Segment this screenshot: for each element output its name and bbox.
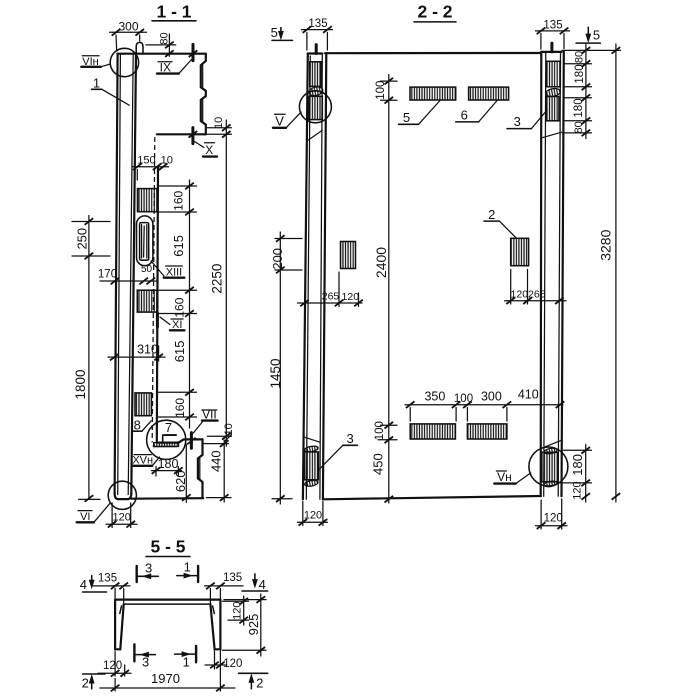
svg-text:160: 160: [173, 398, 187, 418]
svg-text:10: 10: [223, 423, 235, 435]
svg-text:250: 250: [74, 228, 89, 250]
svg-text:120: 120: [223, 658, 242, 670]
svg-text:2: 2: [488, 207, 495, 222]
svg-text:300: 300: [481, 389, 502, 403]
svg-text:170: 170: [98, 268, 117, 280]
svg-text:Vн: Vн: [497, 470, 512, 484]
svg-text:410: 410: [518, 388, 539, 402]
svg-text:3: 3: [514, 114, 521, 129]
svg-text:1: 1: [183, 654, 190, 669]
svg-text:120: 120: [304, 510, 322, 522]
svg-text:3: 3: [145, 561, 152, 576]
svg-text:180: 180: [158, 457, 179, 471]
svg-text:2250: 2250: [210, 264, 225, 294]
svg-text:120: 120: [113, 512, 131, 524]
svg-text:4: 4: [80, 577, 87, 592]
svg-text:5: 5: [403, 110, 410, 125]
svg-text:1: 1: [93, 75, 100, 90]
svg-text:440: 440: [208, 450, 223, 472]
svg-text:180: 180: [570, 454, 585, 476]
svg-text:10: 10: [161, 154, 173, 166]
svg-text:1 - 1: 1 - 1: [156, 2, 191, 22]
svg-text:3280: 3280: [598, 229, 614, 260]
svg-text:180: 180: [573, 98, 585, 117]
svg-text:10: 10: [213, 117, 225, 129]
svg-text:925: 925: [246, 614, 261, 636]
svg-text:3: 3: [346, 431, 353, 446]
svg-text:V: V: [275, 114, 284, 129]
svg-text:450: 450: [370, 453, 385, 475]
svg-text:5: 5: [271, 25, 278, 40]
svg-text:2: 2: [256, 676, 263, 691]
svg-text:100: 100: [454, 393, 473, 405]
svg-text:1450: 1450: [268, 358, 283, 388]
svg-text:2 - 2: 2 - 2: [417, 2, 452, 22]
svg-text:2: 2: [82, 676, 89, 691]
svg-text:160: 160: [171, 190, 185, 210]
svg-text:100: 100: [374, 421, 386, 440]
svg-text:265: 265: [322, 291, 340, 303]
svg-text:135: 135: [223, 572, 242, 584]
svg-text:120: 120: [342, 291, 360, 303]
svg-text:1970: 1970: [151, 671, 180, 686]
svg-text:135: 135: [308, 18, 327, 30]
svg-text:X: X: [205, 143, 213, 157]
svg-text:3: 3: [142, 655, 149, 670]
svg-text:2400: 2400: [373, 247, 389, 278]
svg-text:135: 135: [98, 573, 117, 585]
svg-text:5: 5: [593, 28, 600, 43]
svg-text:615: 615: [171, 235, 186, 257]
svg-text:80: 80: [158, 32, 170, 44]
svg-text:1: 1: [184, 560, 191, 575]
svg-text:120: 120: [544, 512, 563, 524]
svg-text:7: 7: [165, 420, 172, 435]
svg-text:180: 180: [574, 64, 586, 83]
svg-text:50: 50: [141, 264, 153, 275]
svg-text:310: 310: [137, 342, 158, 356]
svg-text:615: 615: [172, 341, 187, 363]
svg-text:300: 300: [118, 20, 138, 34]
svg-text:80: 80: [573, 51, 585, 63]
svg-text:200: 200: [270, 248, 285, 270]
svg-text:120: 120: [572, 481, 584, 499]
svg-text:100: 100: [375, 81, 387, 100]
svg-text:VI: VI: [80, 511, 90, 523]
svg-text:1800: 1800: [73, 369, 88, 399]
svg-text:6: 6: [461, 108, 468, 123]
svg-text:265: 265: [528, 289, 546, 301]
svg-text:135: 135: [543, 19, 562, 31]
svg-text:350: 350: [424, 389, 445, 403]
svg-text:160: 160: [173, 297, 187, 317]
svg-text:4: 4: [259, 577, 266, 592]
svg-text:120: 120: [511, 288, 529, 300]
svg-text:150: 150: [137, 154, 155, 166]
svg-text:120: 120: [231, 602, 243, 620]
svg-text:5 - 5: 5 - 5: [150, 537, 185, 557]
svg-text:8: 8: [134, 417, 141, 432]
svg-text:80: 80: [573, 121, 585, 133]
